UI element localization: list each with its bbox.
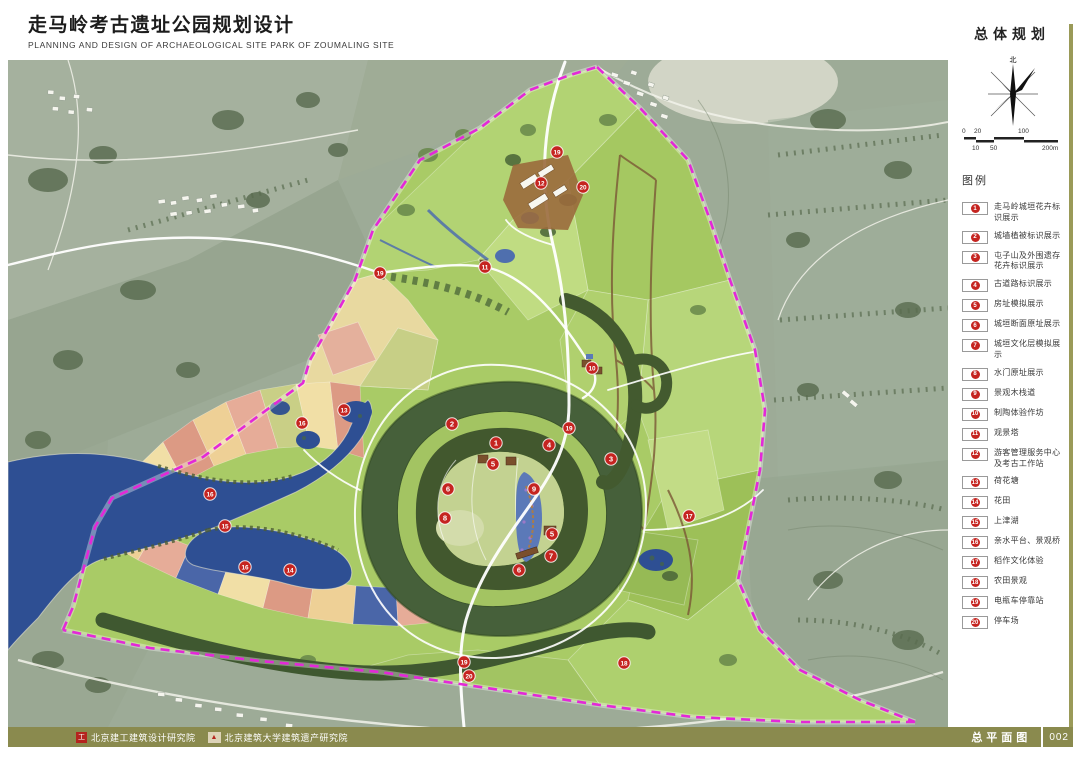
gate-structure — [478, 455, 488, 463]
svg-text:20: 20 — [465, 673, 473, 680]
sheet-edge-rule — [1069, 24, 1073, 747]
institute-2-name: 北京建筑大学建筑遗产研究院 — [225, 731, 349, 744]
legend-item: 11观景塔 — [962, 428, 1068, 441]
legend-number-badge: 4 — [971, 281, 980, 290]
svg-text:17: 17 — [685, 513, 693, 520]
legend-list: 1走马岭城垣花卉标识展示2城墙植被标识展示3屯子山及外围遗存花卉标识展示4古道路… — [962, 202, 1068, 629]
legend-label: 观景塔 — [994, 428, 1019, 439]
map-marker: 7 — [545, 550, 557, 562]
map-marker: 1 — [490, 437, 502, 449]
legend-symbol: 13 — [962, 476, 988, 489]
legend-number-badge: 6 — [971, 321, 980, 330]
legend-number-badge: 3 — [971, 253, 980, 262]
legend-symbol: 9 — [962, 388, 988, 401]
legend-item: 5房址模拟展示 — [962, 299, 1068, 312]
legend-number-badge: 15 — [971, 518, 980, 527]
svg-text:9: 9 — [532, 484, 536, 493]
map-marker: 16 — [239, 561, 251, 573]
legend-label: 城垣断面原址展示 — [994, 319, 1060, 330]
legend-item: 18农田景观 — [962, 576, 1068, 589]
site-plan-map: 1912201911101316219143569168171557161461… — [8, 60, 948, 727]
legend-number-badge: 17 — [971, 558, 980, 567]
map-marker: 11 — [479, 261, 491, 273]
legend-symbol: 8 — [962, 368, 988, 381]
legend-label: 走马岭城垣花卉标识展示 — [994, 202, 1068, 224]
map-marker: 9 — [528, 483, 540, 495]
map-marker: 3 — [605, 453, 617, 465]
page-subtitle: PLANNING AND DESIGN OF ARCHAEOLOGICAL SI… — [28, 40, 394, 50]
legend-label: 景观木栈道 — [994, 388, 1036, 399]
page-title: 走马岭考古遗址公园规划设计 — [28, 10, 394, 37]
legend-symbol: 18 — [962, 576, 988, 589]
legend-item: 15上津湖 — [962, 516, 1068, 529]
legend-number-badge: 14 — [971, 498, 980, 507]
legend-item: 20停车场 — [962, 616, 1068, 629]
scale-bar: 0 20 100 10 50 200m — [962, 128, 1062, 154]
small-pond — [495, 249, 515, 263]
gate-structure — [506, 457, 516, 465]
svg-text:8: 8 — [443, 513, 447, 522]
compass-needle — [1010, 64, 1016, 126]
legend-item: 7城垣文化层模拟展示 — [962, 339, 1068, 361]
institute-2-logo: ▲ — [208, 732, 221, 743]
scale-label: 10 — [972, 145, 979, 152]
svg-text:11: 11 — [482, 264, 489, 271]
map-marker: 16 — [296, 417, 308, 429]
north-label: 北 — [1010, 56, 1017, 64]
legend-label: 城墙植被标识展示 — [994, 231, 1060, 242]
map-marker: 19 — [551, 146, 563, 158]
legend-label: 水门原址展示 — [994, 368, 1044, 379]
map-marker: 4 — [543, 439, 555, 451]
legend-symbol: 19 — [962, 596, 988, 609]
legend-label: 电瓶车停靠站 — [994, 596, 1044, 607]
legend-label: 稻作文化体验 — [994, 556, 1044, 567]
svg-text:16: 16 — [206, 491, 214, 498]
svg-text:19: 19 — [553, 149, 561, 156]
svg-text:3: 3 — [609, 454, 613, 463]
legend-symbol: 1 — [962, 202, 988, 215]
map-marker: 15 — [219, 520, 231, 532]
legend-symbol: 2 — [962, 231, 988, 244]
legend-symbol: 16 — [962, 536, 988, 549]
legend-item: 9景观木栈道 — [962, 388, 1068, 401]
legend-symbol: 3 — [962, 251, 988, 264]
svg-text:13: 13 — [340, 407, 348, 414]
legend-item: 6城垣断面原址展示 — [962, 319, 1068, 332]
legend-label: 屯子山及外围遗存花卉标识展示 — [994, 251, 1068, 273]
legend-number-badge: 12 — [971, 450, 980, 459]
legend-item: 12游客管理服务中心及考古工作站 — [962, 448, 1068, 470]
map-marker: 19 — [563, 422, 575, 434]
legend-item: 16亲水平台、景观桥 — [962, 536, 1068, 549]
legend-item: 8水门原址展示 — [962, 368, 1068, 381]
scale-label: 20 — [974, 128, 981, 135]
svg-text:15: 15 — [221, 523, 229, 530]
sheet-name: 总平面图 — [971, 729, 1031, 745]
institutes: 工 北京建工建筑设计研究院 ▲ 北京建筑大学建筑遗产研究院 — [76, 731, 348, 744]
legend-label: 城垣文化层模拟展示 — [994, 339, 1068, 361]
map-marker: 6 — [442, 483, 454, 495]
legend-number-badge: 11 — [971, 430, 980, 439]
scale-label: 50 — [990, 145, 997, 152]
title-block: 走马岭考古遗址公园规划设计 PLANNING AND DESIGN OF ARC… — [28, 10, 394, 50]
svg-text:6: 6 — [517, 565, 521, 574]
legend-number-badge: 19 — [971, 598, 980, 607]
legend-number-badge: 2 — [971, 233, 980, 242]
drawing-sheet: { "header": { "title_cn": "走马岭考古遗址公园规划设计… — [0, 0, 1080, 763]
legend-number-badge: 5 — [971, 301, 980, 310]
legend-number-badge: 20 — [971, 618, 980, 627]
legend-number-badge: 16 — [971, 538, 980, 547]
legend-label: 农田景观 — [994, 576, 1027, 587]
legend-number-badge: 7 — [971, 341, 980, 350]
footer-bar: 工 北京建工建筑设计研究院 ▲ 北京建筑大学建筑遗产研究院 总平面图 002 — [8, 727, 1073, 747]
compass-rose: 北 — [982, 54, 1044, 128]
svg-text:12: 12 — [537, 180, 545, 187]
svg-text:6: 6 — [446, 484, 450, 493]
institute-1-name: 北京建工建筑设计研究院 — [91, 731, 196, 744]
map-marker: 16 — [204, 488, 216, 500]
svg-text:16: 16 — [241, 564, 249, 571]
legend-item: 2城墙植被标识展示 — [962, 231, 1068, 244]
svg-text:7: 7 — [549, 551, 553, 560]
svg-text:10: 10 — [588, 365, 596, 372]
legend-label: 上津湖 — [994, 516, 1019, 527]
map-marker: 12 — [535, 177, 547, 189]
map-marker: 14 — [284, 564, 296, 576]
svg-text:14: 14 — [286, 567, 294, 574]
legend: 图例 1走马岭城垣花卉标识展示2城墙植被标识展示3屯子山及外围遗存花卉标识展示4… — [962, 172, 1068, 636]
legend-symbol: 7 — [962, 339, 988, 352]
legend-number-badge: 8 — [971, 370, 980, 379]
legend-label: 房址模拟展示 — [994, 299, 1044, 310]
svg-text:16: 16 — [298, 420, 306, 427]
map-marker: 13 — [338, 404, 350, 416]
svg-text:19: 19 — [565, 425, 573, 432]
map-marker: 20 — [463, 670, 475, 682]
visitor-center-ground — [503, 155, 583, 230]
legend-number-badge: 9 — [971, 390, 980, 399]
pond-17 — [639, 549, 673, 571]
svg-text:18: 18 — [620, 660, 628, 667]
legend-symbol: 17 — [962, 556, 988, 569]
legend-item: 19电瓶车停靠站 — [962, 596, 1068, 609]
map-marker: 5 — [546, 528, 558, 540]
legend-number-badge: 1 — [971, 204, 980, 213]
map-marker: 19 — [458, 656, 470, 668]
scale-label: 200m — [1042, 145, 1058, 152]
legend-label: 古道路标识展示 — [994, 279, 1052, 290]
map-marker: 8 — [439, 512, 451, 524]
legend-label: 停车场 — [994, 616, 1019, 627]
institute-1-logo: 工 — [76, 732, 87, 743]
legend-item: 17稻作文化体验 — [962, 556, 1068, 569]
legend-symbol: 12 — [962, 448, 988, 461]
legend-symbol: 20 — [962, 616, 988, 629]
legend-label: 花田 — [994, 496, 1011, 507]
legend-title: 图例 — [962, 172, 1068, 188]
map-marker: 19 — [374, 267, 386, 279]
legend-item: 14花田 — [962, 496, 1068, 509]
map-marker: 5 — [487, 458, 499, 470]
legend-label: 游客管理服务中心及考古工作站 — [994, 448, 1068, 470]
map-marker: 18 — [618, 657, 630, 669]
map-marker: 17 — [683, 510, 695, 522]
legend-item: 1走马岭城垣花卉标识展示 — [962, 202, 1068, 224]
svg-text:19: 19 — [376, 270, 384, 277]
map-marker: 10 — [586, 362, 598, 374]
map-marker: 6 — [513, 564, 525, 576]
legend-number-badge: 13 — [971, 478, 980, 487]
legend-item: 3屯子山及外围遗存花卉标识展示 — [962, 251, 1068, 273]
legend-item: 4古道路标识展示 — [962, 279, 1068, 292]
legend-symbol: 5 — [962, 299, 988, 312]
map-marker: 2 — [446, 418, 458, 430]
legend-item: 13荷花塘 — [962, 476, 1068, 489]
svg-text:20: 20 — [579, 184, 587, 191]
legend-label: 制陶体验作坊 — [994, 408, 1044, 419]
svg-text:19: 19 — [460, 659, 468, 666]
sidebar-panel: 总体规划 北 0 20 100 10 50 200m 图例 1走马岭城垣 — [948, 0, 1072, 727]
legend-symbol: 10 — [962, 408, 988, 421]
legend-symbol: 15 — [962, 516, 988, 529]
legend-symbol: 4 — [962, 279, 988, 292]
plan-type-title: 总体规划 — [974, 24, 1050, 44]
svg-text:2: 2 — [450, 419, 454, 428]
legend-symbol: 6 — [962, 319, 988, 332]
sheet-title-block: 总平面图 002 — [971, 727, 1073, 747]
legend-label: 亲水平台、景观桥 — [994, 536, 1060, 547]
page-number: 002 — [1049, 732, 1069, 743]
legend-number-badge: 10 — [971, 410, 980, 419]
sheet-divider — [1041, 727, 1043, 747]
legend-symbol: 14 — [962, 496, 988, 509]
map-marker: 20 — [577, 181, 589, 193]
legend-number-badge: 18 — [971, 578, 980, 587]
legend-label: 荷花塘 — [994, 476, 1019, 487]
legend-symbol: 11 — [962, 428, 988, 441]
scale-label: 0 — [962, 128, 966, 135]
scale-label: 100 — [1018, 128, 1029, 135]
legend-item: 10制陶体验作坊 — [962, 408, 1068, 421]
